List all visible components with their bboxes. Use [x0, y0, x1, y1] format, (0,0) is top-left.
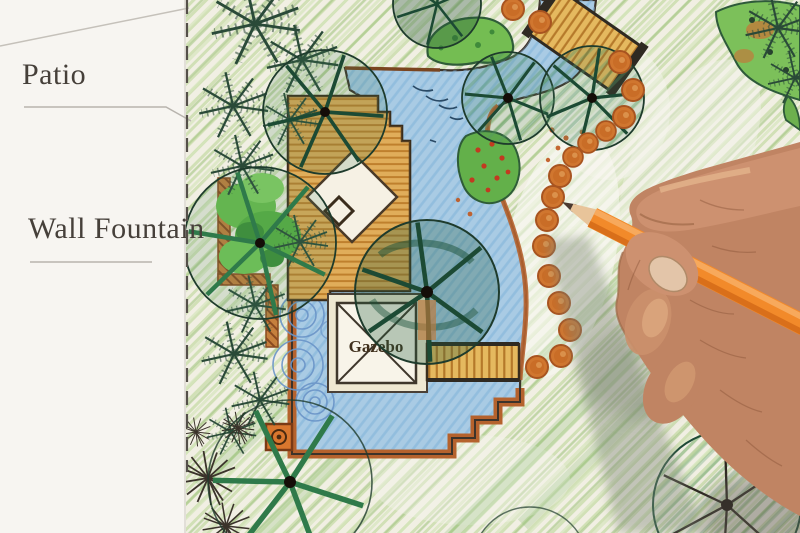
patio-label: Patio	[22, 58, 86, 91]
landscape-plan-photo: Gazebo	[0, 0, 800, 533]
wall-fountain-label: Wall Fountain	[28, 212, 205, 245]
